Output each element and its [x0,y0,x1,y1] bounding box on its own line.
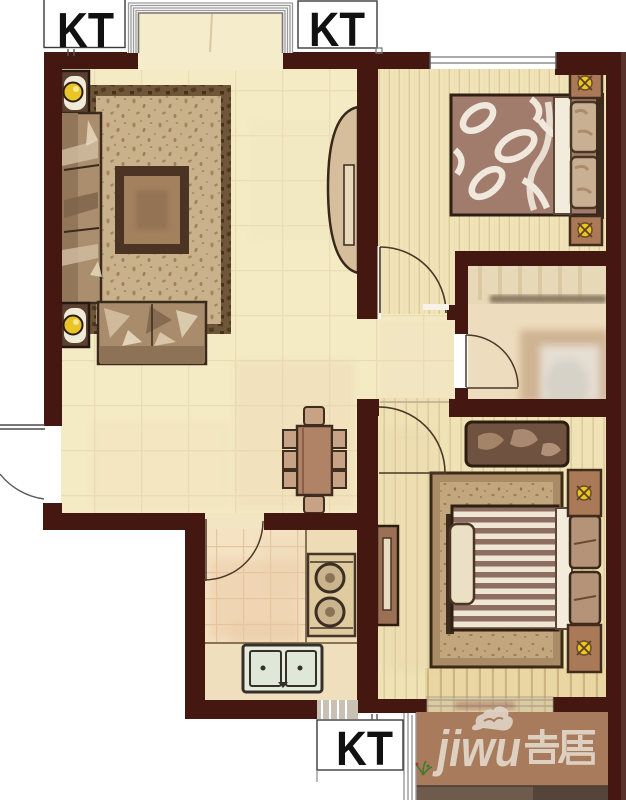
svg-text:jiwu: jiwu [432,720,521,777]
svg-text:KT: KT [336,723,393,776]
svg-text:KT: KT [309,4,365,57]
svg-text:KT: KT [57,4,114,58]
